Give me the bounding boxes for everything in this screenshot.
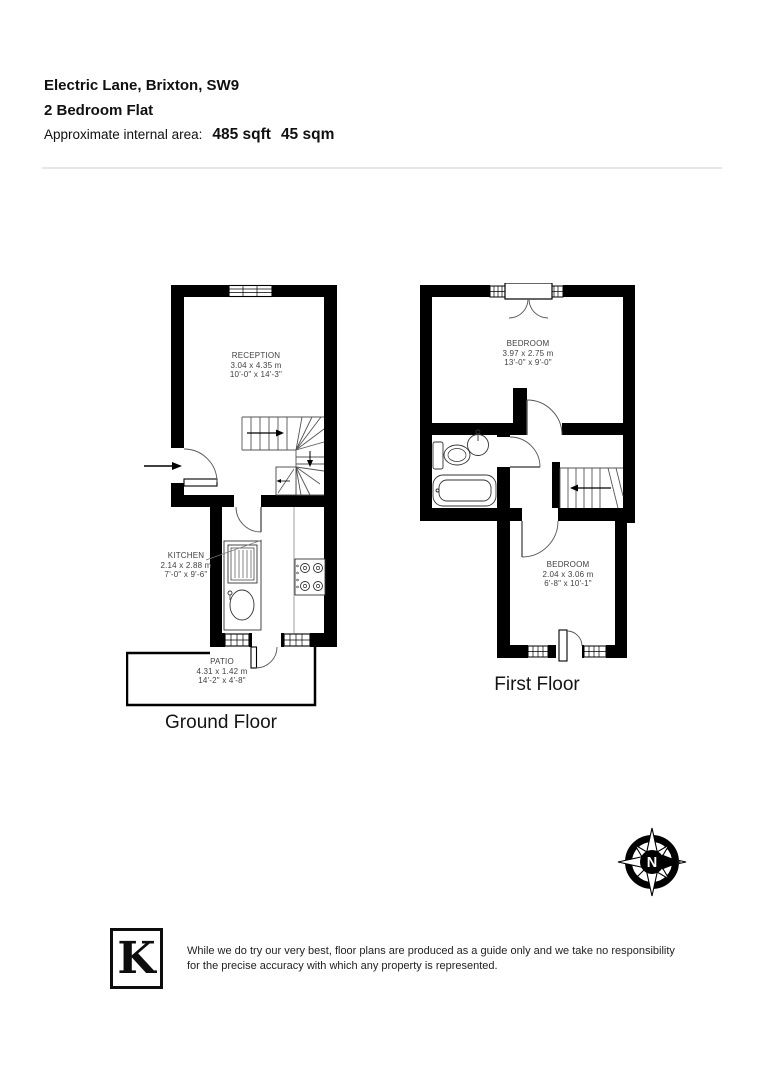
property-type: 2 Bedroom Flat [44, 102, 153, 119]
room-dim-metric: 2.04 x 3.06 m [542, 570, 593, 580]
room-dim-imperial: 10'-0" x 14'-3" [230, 370, 282, 380]
bathroom-door [510, 437, 540, 467]
compass-n-label: N [647, 855, 657, 871]
first-floor-title: First Floor [494, 674, 580, 696]
bedroom1-room-label: BEDROOM 3.97 x 2.75 m 13'-0" x 9'-0" [502, 339, 553, 368]
entrance-door [184, 449, 217, 486]
stair-up-arrow [247, 430, 284, 437]
room-dim-metric: 3.97 x 2.75 m [502, 349, 553, 359]
room-dim-metric: 4.31 x 1.42 m [196, 667, 247, 677]
room-dim-metric: 2.14 x 2.88 m [160, 561, 211, 571]
area-sqm: 45 sqm [281, 126, 334, 144]
room-dim-imperial: 14'-2" x 4'-8" [196, 676, 247, 686]
property-address: Electric Lane, Brixton, SW9 [44, 77, 239, 94]
kitchen-door [236, 507, 261, 532]
area-sqft: 485 sqft [212, 126, 271, 144]
bedroom2-window-left [528, 646, 548, 657]
bedroom2-room-label: BEDROOM 2.04 x 3.06 m 6'-8" x 10'-1" [542, 560, 593, 589]
reception-room-label: RECEPTION 3.04 x 4.35 m 10'-0" x 14'-3" [230, 351, 282, 380]
room-dim-imperial: 13'-0" x 9'-0" [502, 358, 553, 368]
room-name: RECEPTION [230, 351, 282, 361]
disclaimer-line-1: While we do try our very best, floor pla… [187, 944, 677, 959]
toilet-icon [433, 442, 470, 469]
ground-floor-title: Ground Floor [165, 712, 277, 734]
agency-logo-letter: K [117, 937, 155, 981]
entry-arrow [144, 462, 182, 470]
kitchen-sink-unit [224, 541, 261, 630]
room-dim-imperial: 7'-0" x 9'-6" [160, 570, 211, 580]
kitchen-room-label: KITCHEN 2.14 x 2.88 m 7'-0" x 9'-6" [160, 551, 211, 580]
agency-logo: K [110, 928, 163, 989]
floorplan-page: Electric Lane, Brixton, SW9 2 Bedroom Fl… [0, 0, 764, 1080]
kitchen-window-left [225, 634, 249, 646]
internal-area-row: Approximate internal area: 485 sqft 45 s… [44, 126, 334, 144]
room-name: PATIO [196, 657, 247, 667]
patio-door [251, 647, 277, 668]
bath-icon [433, 475, 496, 506]
reception-window [229, 286, 272, 297]
french-doors [505, 283, 552, 318]
bedroom1-door [527, 400, 562, 435]
bedroom2-window-right [584, 646, 606, 657]
bedroom2-door [522, 521, 558, 557]
room-name: BEDROOM [502, 339, 553, 349]
patio-label: PATIO 4.31 x 1.42 m 14'-2" x 4'-8" [196, 657, 247, 686]
ground-floor-plan [126, 283, 342, 713]
area-label: Approximate internal area: [44, 127, 202, 142]
room-name: BEDROOM [542, 560, 593, 570]
bedroom2-entry-door [559, 630, 582, 661]
understairs-cupboard [276, 467, 296, 495]
compass-rose-icon: N [617, 827, 687, 897]
room-dim-metric: 3.04 x 4.35 m [230, 361, 282, 371]
room-dim-imperial: 6'-8" x 10'-1" [542, 579, 593, 589]
disclaimer-line-2: for the precise accuracy with which any … [187, 959, 677, 974]
stair-down-arrow-first [570, 485, 611, 492]
header-divider [42, 167, 722, 169]
stair-down-arrow [307, 451, 313, 467]
kitchen-window-right [284, 634, 310, 646]
kitchen-hob [294, 507, 325, 633]
disclaimer-text: While we do try our very best, floor pla… [187, 944, 677, 973]
room-name: KITCHEN [160, 551, 211, 561]
